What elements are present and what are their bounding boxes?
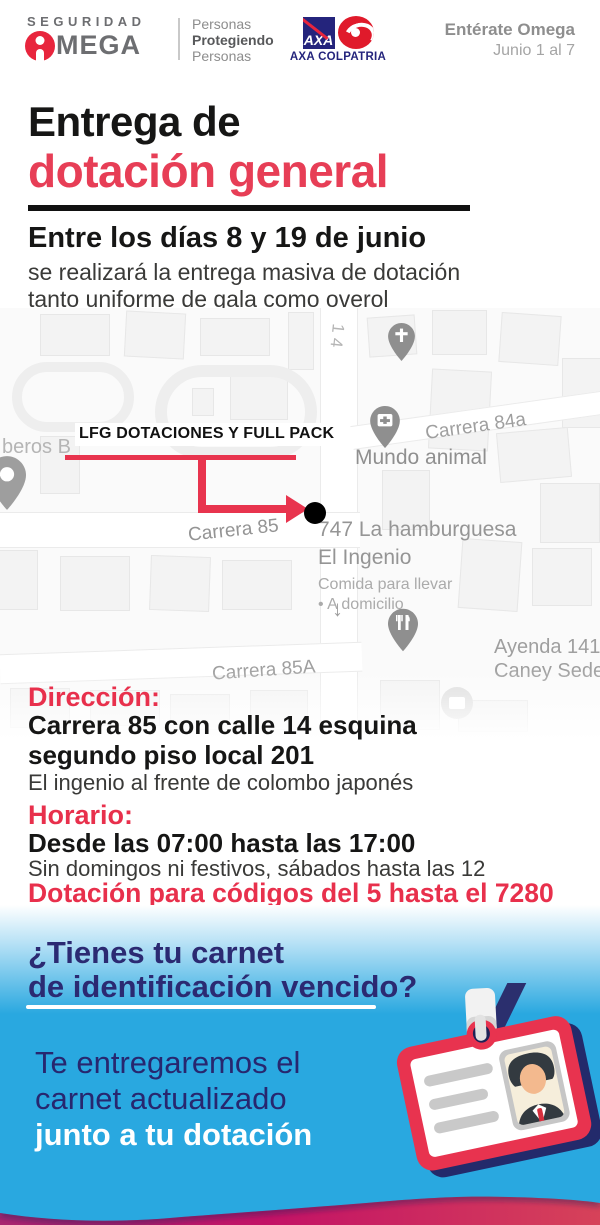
tagline-line2: Protegiendo (192, 32, 274, 48)
carnet-answer-line2: carnet actualizado (35, 1081, 287, 1117)
intro-heading: Entre los días 8 y 19 de junio (28, 222, 426, 255)
carnet-section: ¿Tienes tu carnet de identificación venc… (0, 905, 600, 1225)
direccion-line1: Carrera 85 con calle 14 esquina (28, 710, 417, 740)
carnet-underline (26, 1005, 376, 1009)
brand-tagline: Personas Protegiendo Personas (192, 16, 274, 64)
oneway-arrow-icon: ↓ (332, 596, 343, 622)
location-map: 14 beros B Carrera 84a Mundo animal Carr… (0, 308, 600, 738)
horario-heading: Horario: (28, 800, 133, 831)
carnet-answer-line1: Te entregaremos el (35, 1045, 300, 1081)
edition-block: Entérate Omega Junio 1 al 7 (445, 20, 575, 60)
destination-callout: LFG DOTACIONES Y FULL PACK (75, 423, 340, 446)
left-edge-pin-icon (0, 456, 26, 510)
map-label-hamburguesa-2: El Ingenio (318, 546, 411, 570)
destination-dot (304, 502, 326, 524)
direccion-line2: segundo piso local 201 (28, 740, 314, 770)
map-label-hamburguesa-3: Comida para llevar (318, 576, 452, 594)
faint-circle-pin-icon (440, 686, 474, 720)
edition-title: Entérate Omega (445, 20, 575, 40)
brand-mega-text: MEGA (56, 30, 141, 61)
axa-colpatria-label: AXA COLPATRIA (283, 51, 393, 63)
header: SEGURIDAD MEGA Personas Protegiendo Pers… (0, 0, 600, 80)
seguridad-omega-logo: SEGURIDAD MEGA (25, 14, 175, 61)
flyer-page: SEGURIDAD MEGA Personas Protegiendo Pers… (0, 0, 600, 1225)
axa-square-icon: AXA (303, 17, 335, 49)
colpatria-swirl-icon (338, 16, 374, 49)
horario-hours: Desde las 07:00 hasta las 17:00 (28, 828, 415, 858)
logo-divider (178, 18, 180, 60)
intro-body-line1: se realizará la entrega masiva de dotaci… (28, 259, 460, 286)
restaurant-pin-icon (388, 608, 418, 652)
store-pin-icon (370, 406, 400, 448)
brand-seguridad-text: SEGURIDAD (27, 14, 175, 29)
carnet-question-line2: de identificación vencido? (28, 969, 417, 1004)
map-label-hamburguesa-1: 747 La hamburguesa (318, 518, 517, 542)
direccion-note: El ingenio al frente de colombo japonés (28, 770, 413, 796)
intro-body: se realizará la entrega masiva de dotaci… (28, 259, 460, 313)
page-title-line2: dotación general (28, 144, 388, 198)
route-arrow-horizontal (198, 505, 290, 513)
map-label-ayenda-2: Caney Sede (494, 660, 600, 683)
page-title-line1: Entrega de (28, 98, 240, 146)
church-pin-icon (388, 323, 415, 361)
map-label-14: 14 (325, 323, 348, 354)
map-label-ayenda-1: Ayenda 141 (494, 636, 600, 659)
footer-wave (0, 1135, 600, 1225)
map-label-mundo-animal: Mundo animal (355, 446, 487, 470)
axa-colpatria-logo: AXA AXA COLPATRIA (283, 16, 393, 63)
callout-underline (65, 455, 296, 460)
tagline-line1: Personas (192, 16, 274, 32)
omega-logo-icon (25, 31, 55, 61)
carnet-question-line1: ¿Tienes tu carnet (28, 935, 284, 970)
edition-dates: Junio 1 al 7 (445, 42, 575, 60)
tagline-line3: Personas (192, 48, 274, 64)
title-underline (28, 205, 470, 211)
direccion-heading: Dirección: (28, 682, 160, 713)
